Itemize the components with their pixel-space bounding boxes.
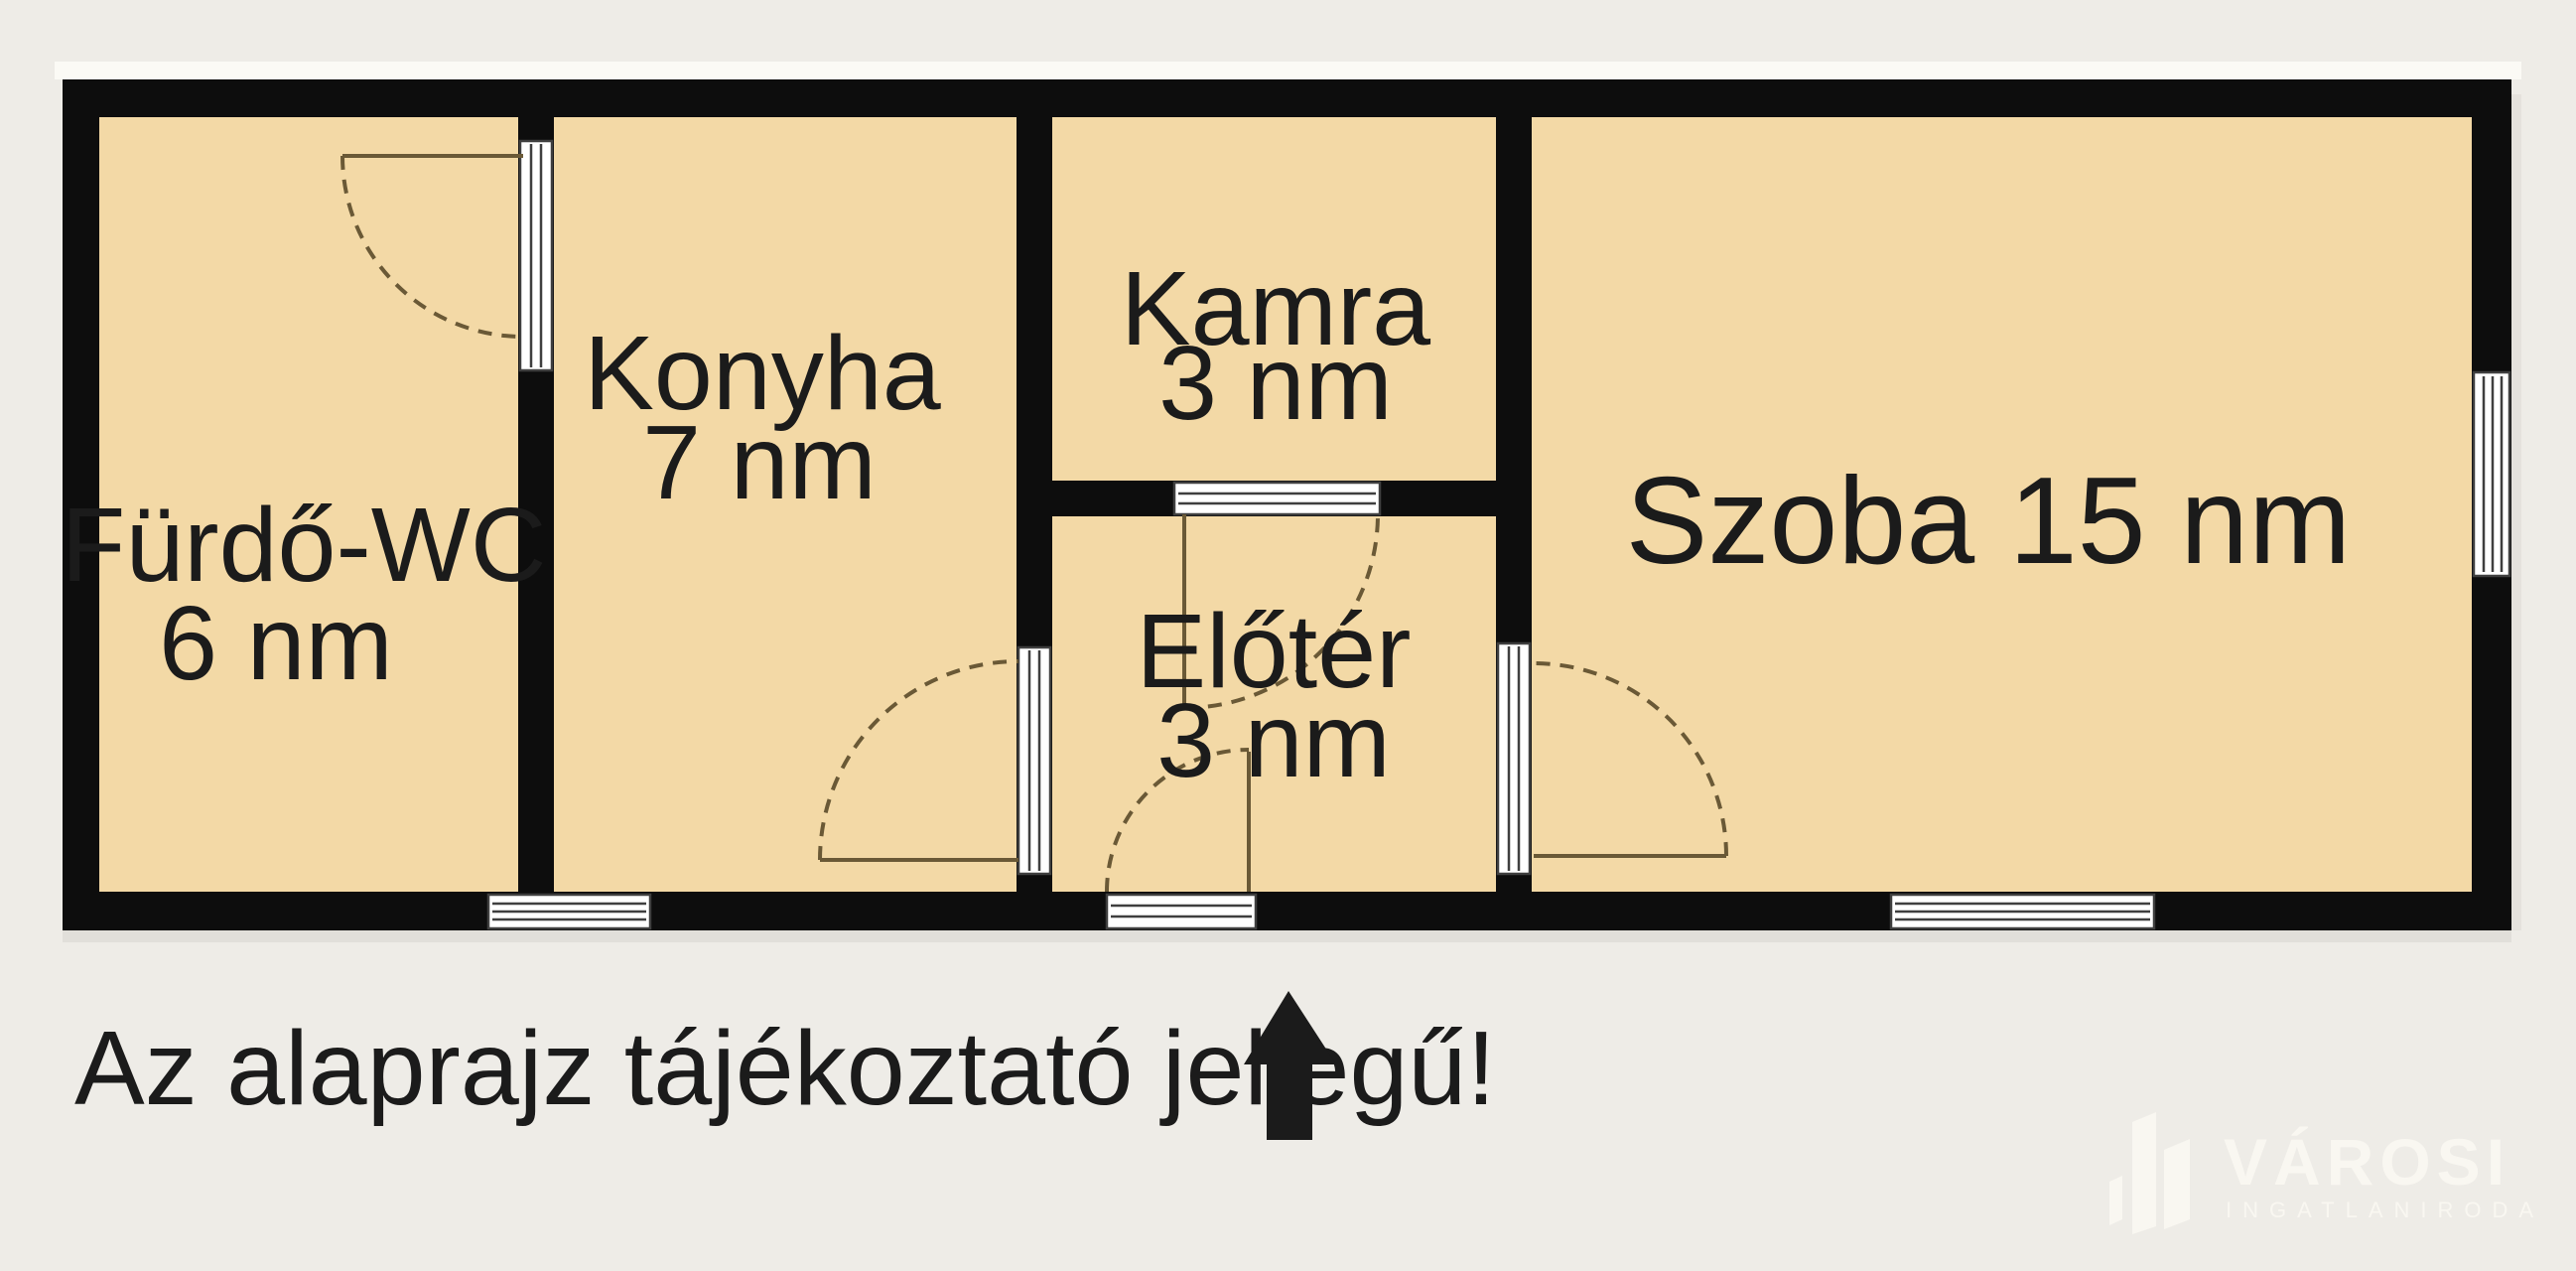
room-name: Szoba 15 nm xyxy=(1626,453,2352,590)
room-area: 6 nm xyxy=(159,585,393,702)
window-icon xyxy=(1891,895,2154,928)
window-icon xyxy=(488,895,650,928)
right-shadow xyxy=(2511,94,2521,930)
room-kamra: Kamra 3 nm xyxy=(1121,250,1430,442)
top-highlight xyxy=(55,62,2521,79)
logo-brand: VÁROSI xyxy=(2224,1125,2510,1199)
floor-plan-page: Fürdő-WC 6 nm Konyha 7 nm Kamra 3 nm Elő… xyxy=(0,0,2576,1271)
logo: VÁROSI INGATLANIRODA xyxy=(2109,1112,2544,1234)
room-area: 3 nm xyxy=(1158,325,1393,442)
wall-top xyxy=(63,79,2511,117)
room-area: 7 nm xyxy=(642,404,877,521)
logo-subtitle: INGATLANIRODA xyxy=(2226,1198,2544,1222)
building-icon xyxy=(2109,1112,2190,1234)
window-icon xyxy=(2474,372,2509,576)
floor-plan-drawing: Fürdő-WC 6 nm Konyha 7 nm Kamra 3 nm Elő… xyxy=(0,0,2576,1271)
room-eloter: Előtér 3 nm xyxy=(1137,593,1412,799)
room-szoba: Szoba 15 nm xyxy=(1626,453,2352,590)
bottom-shadow xyxy=(63,930,2511,942)
room-area: 3 nm xyxy=(1156,682,1391,799)
